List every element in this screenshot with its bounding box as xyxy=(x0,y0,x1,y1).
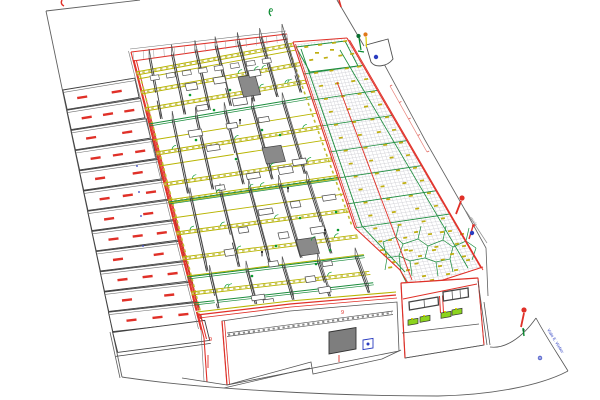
svg-text:9: 9 xyxy=(341,310,344,316)
svg-text:9: 9 xyxy=(209,337,212,343)
